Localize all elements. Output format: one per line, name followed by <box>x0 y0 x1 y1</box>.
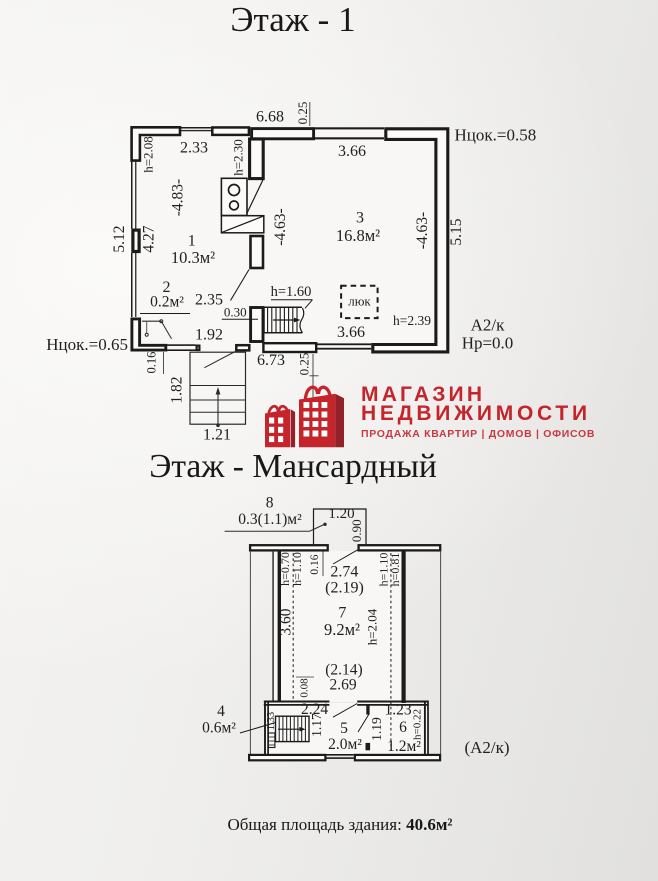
svg-text:(2.19): (2.19) <box>325 580 364 597</box>
svg-text:5: 5 <box>340 720 348 737</box>
svg-text:1.2м²: 1.2м² <box>387 738 421 755</box>
svg-text:1.82: 1.82 <box>169 376 186 403</box>
svg-text:-4.83-: -4.83- <box>170 179 187 216</box>
svg-text:0.25: 0.25 <box>295 102 310 125</box>
svg-text:0.25: 0.25 <box>296 353 311 376</box>
svg-text:0.16: 0.16 <box>144 352 158 374</box>
svg-text:2.74: 2.74 <box>330 564 358 581</box>
svg-text:2.33: 2.33 <box>180 140 208 157</box>
svg-text:3.66: 3.66 <box>337 324 365 341</box>
svg-text:9.2м²: 9.2м² <box>324 620 360 639</box>
svg-text:2.35: 2.35 <box>195 292 223 309</box>
svg-text:6.73: 6.73 <box>257 352 285 369</box>
svg-text:1.21: 1.21 <box>203 427 231 444</box>
svg-text:5.15: 5.15 <box>448 218 465 245</box>
svg-text:0.6м²: 0.6м² <box>202 720 236 737</box>
svg-text:h=1.10: h=1.10 <box>290 552 304 586</box>
svg-text:5.12: 5.12 <box>111 225 128 252</box>
svg-text:-4.63-: -4.63- <box>414 212 431 249</box>
svg-text:0.16: 0.16 <box>309 554 321 574</box>
svg-text:люк: люк <box>348 293 371 308</box>
svg-text:3.60: 3.60 <box>278 608 295 635</box>
svg-text:h=2.30: h=2.30 <box>230 139 245 176</box>
svg-text:6: 6 <box>399 719 407 736</box>
svg-text:8: 8 <box>266 495 274 512</box>
svg-text:(А2/к): (А2/к) <box>464 738 509 757</box>
svg-text:0.90: 0.90 <box>349 519 364 542</box>
svg-text:2.69: 2.69 <box>329 677 356 694</box>
svg-text:1.17: 1.17 <box>309 713 324 737</box>
svg-text:0.2м²: 0.2м² <box>150 294 184 311</box>
svg-text:Нцок.=0.58: Нцок.=0.58 <box>455 125 537 144</box>
svg-text:0.30: 0.30 <box>224 304 247 319</box>
svg-text:0.08: 0.08 <box>299 678 311 698</box>
svg-text:h=0.22: h=0.22 <box>412 709 424 740</box>
svg-text:3: 3 <box>356 210 364 227</box>
svg-text:1.33: 1.33 <box>266 712 277 730</box>
svg-text:2.0м²: 2.0м² <box>328 736 362 753</box>
svg-text:4.27: 4.27 <box>141 225 158 252</box>
svg-text:h=2.39: h=2.39 <box>393 313 431 328</box>
svg-text:h=1.60: h=1.60 <box>271 284 312 300</box>
svg-text:4: 4 <box>217 703 225 720</box>
svg-text:А2/к: А2/к <box>471 315 506 334</box>
svg-text:1.23: 1.23 <box>384 702 411 719</box>
svg-text:-4.63-: -4.63- <box>272 208 289 245</box>
svg-text:10.3м²: 10.3м² <box>171 248 215 267</box>
svg-text:Нцок.=0.65: Нцок.=0.65 <box>46 335 128 354</box>
svg-text:1.92: 1.92 <box>195 327 223 344</box>
svg-text:1.19: 1.19 <box>369 717 384 741</box>
svg-text:h=2.08: h=2.08 <box>140 136 155 173</box>
svg-text:Нр=0.0: Нр=0.0 <box>462 333 514 352</box>
svg-text:h=2.04: h=2.04 <box>364 608 379 645</box>
svg-text:3.66: 3.66 <box>338 143 366 160</box>
svg-text:0.3(1.1)м²: 0.3(1.1)м² <box>238 511 302 528</box>
svg-text:16.8м²: 16.8м² <box>336 226 380 245</box>
svg-text:6.68: 6.68 <box>256 109 284 126</box>
svg-text:h=0.81: h=0.81 <box>388 553 402 587</box>
